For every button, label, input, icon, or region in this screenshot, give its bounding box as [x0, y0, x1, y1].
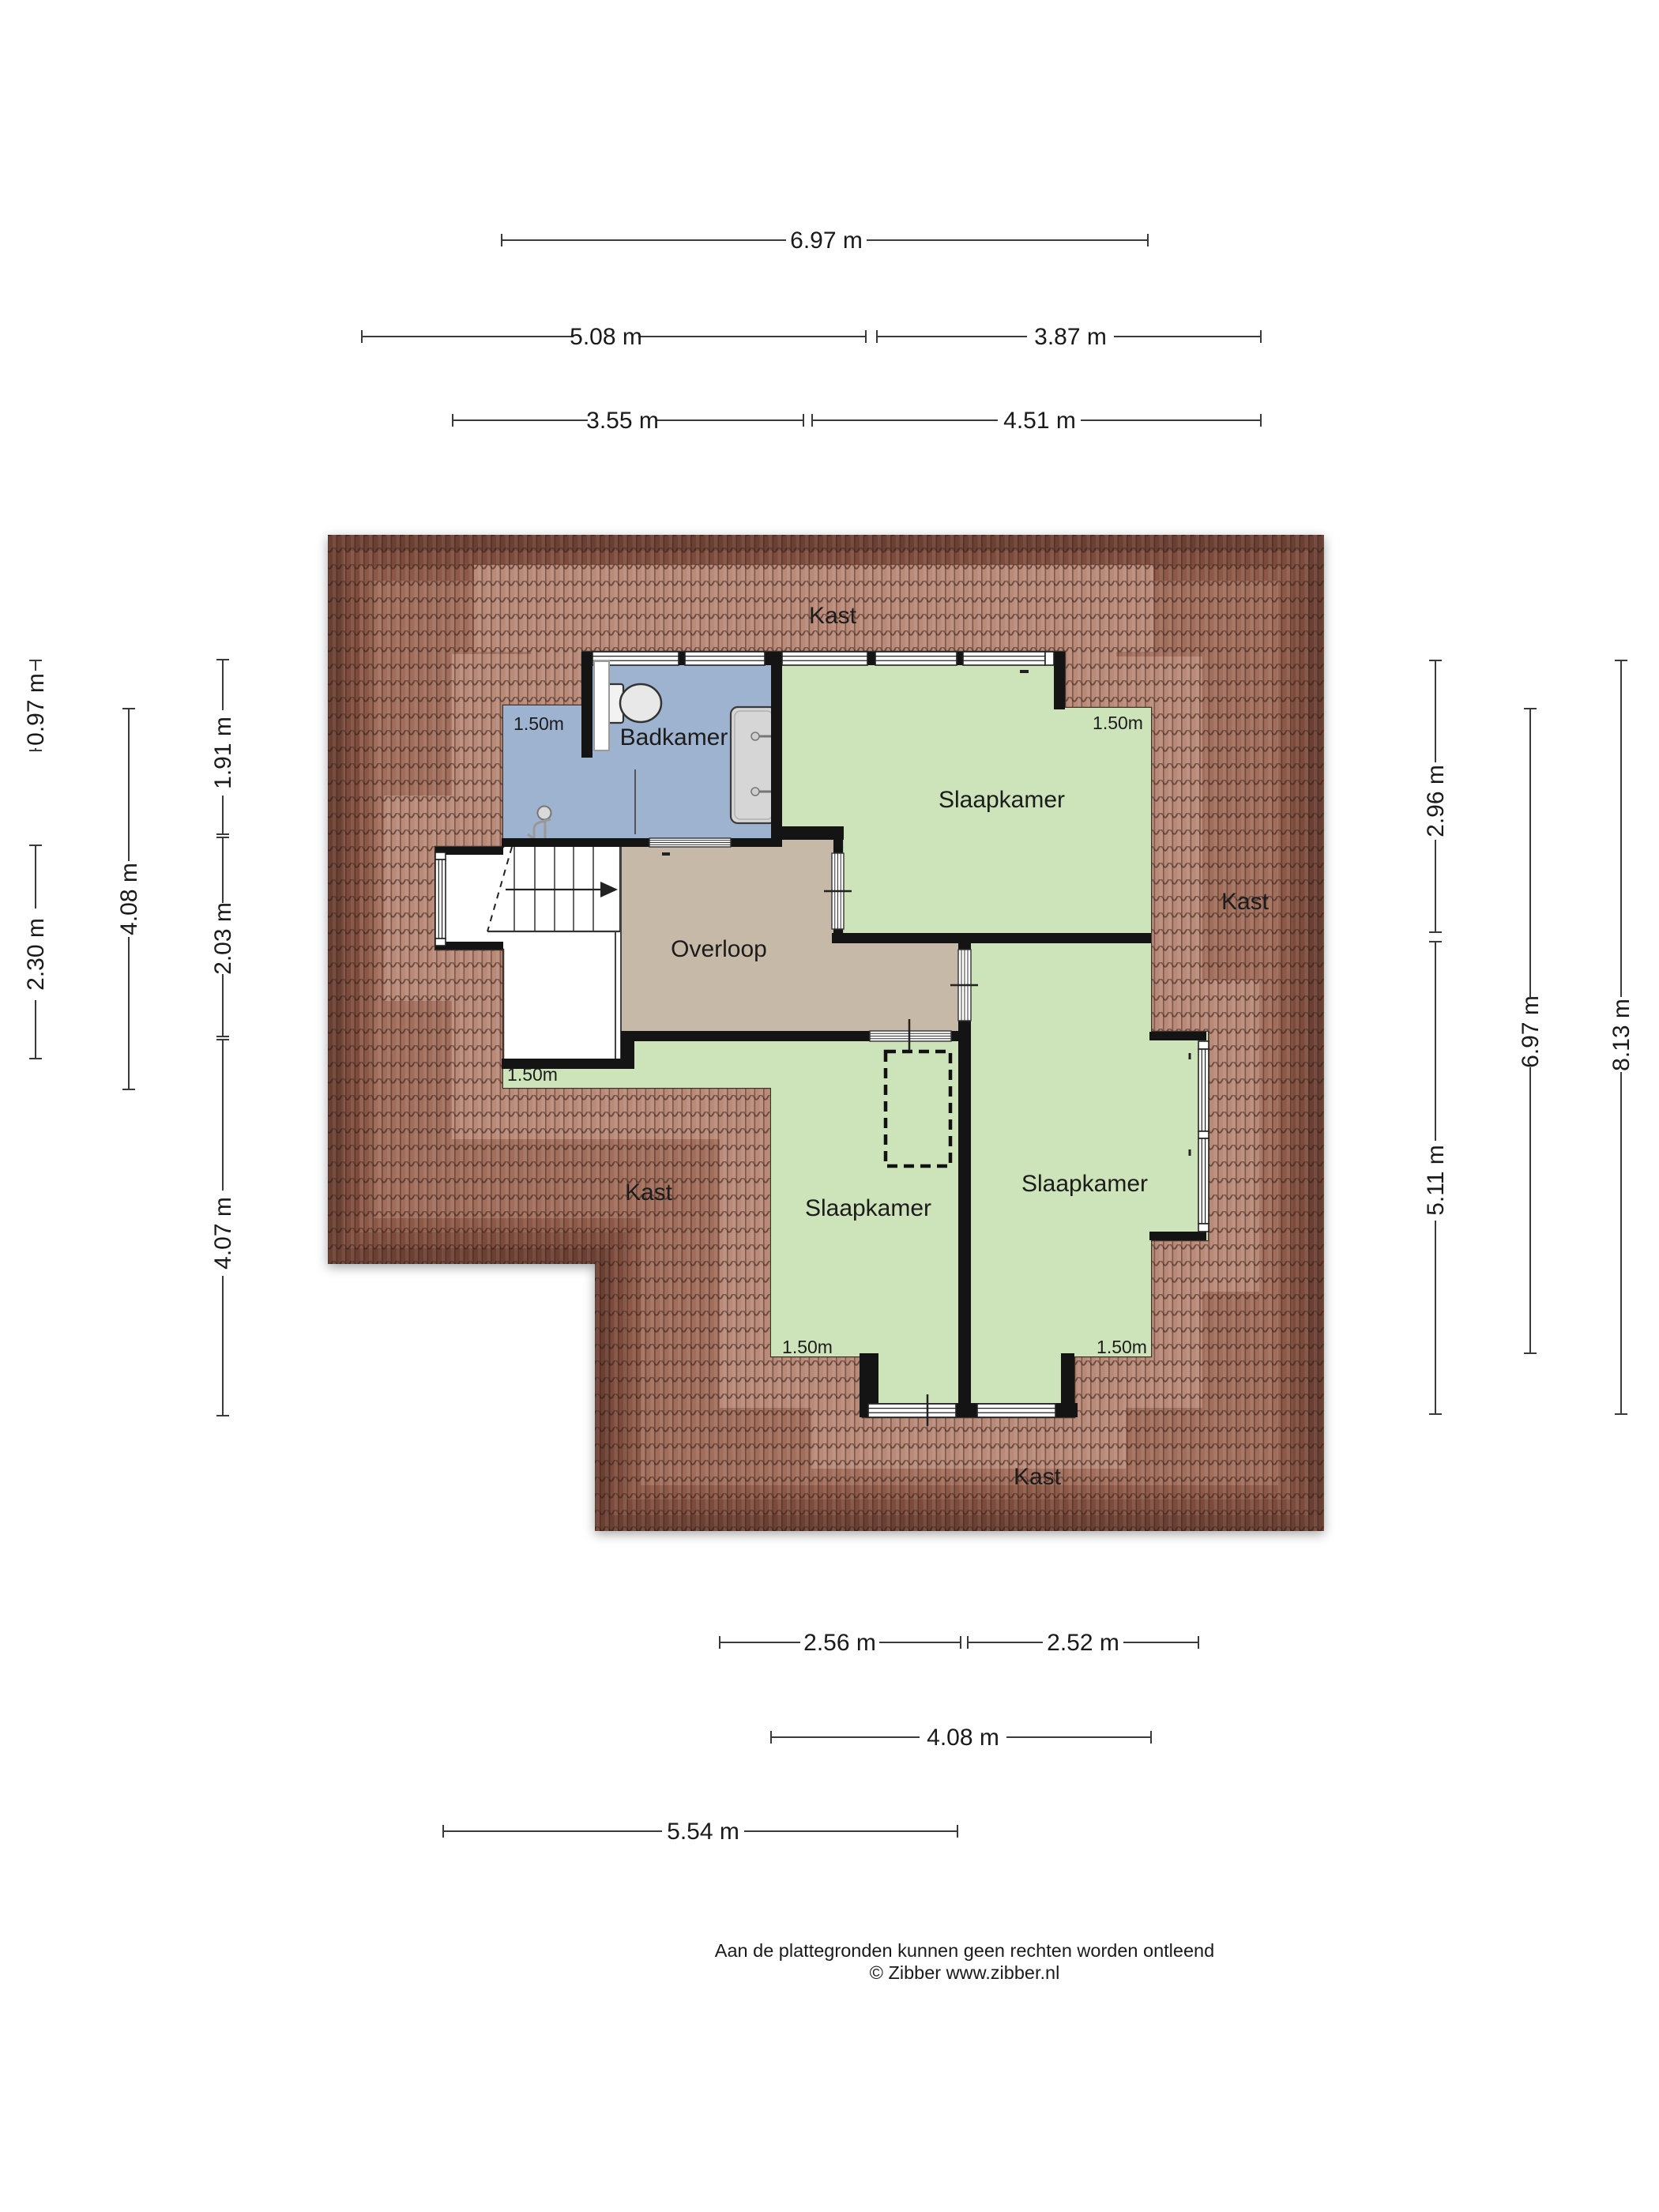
svg-text:Slaapkamer: Slaapkamer [1021, 1171, 1148, 1197]
svg-text:1.91 m: 1.91 m [210, 717, 236, 789]
svg-text:1.50m: 1.50m [1097, 1337, 1147, 1357]
svg-text:1.50m: 1.50m [782, 1337, 833, 1357]
svg-text:4.08 m: 4.08 m [927, 1725, 999, 1751]
svg-text:6.97 m: 6.97 m [1518, 995, 1544, 1068]
svg-text:6.97 m: 6.97 m [790, 228, 863, 254]
svg-text:2.96 m: 2.96 m [1423, 765, 1449, 837]
svg-text:4.51 m: 4.51 m [1003, 408, 1076, 434]
svg-text:Kast: Kast [1014, 1464, 1062, 1490]
svg-text:3.87 m: 3.87 m [1034, 324, 1107, 350]
svg-text:5.11 m: 5.11 m [1423, 1145, 1449, 1216]
svg-text:2.52 m: 2.52 m [1047, 1630, 1119, 1656]
svg-text:Overloop: Overloop [671, 936, 767, 962]
svg-text:Kast: Kast [1221, 889, 1270, 915]
svg-text:2.30 m: 2.30 m [23, 918, 49, 991]
svg-text:Kast: Kast [809, 603, 857, 629]
svg-text:1.50m: 1.50m [507, 1064, 558, 1085]
svg-text:4.08 m: 4.08 m [116, 863, 142, 935]
svg-text:5.54 m: 5.54 m [667, 1819, 739, 1845]
svg-text:8.13 m: 8.13 m [1608, 999, 1635, 1071]
svg-text:5.08 m: 5.08 m [570, 324, 642, 350]
svg-text:0.97 m: 0.97 m [23, 673, 49, 746]
svg-text:Aan de plattegronden kunnen ge: Aan de plattegronden kunnen geen rechten… [715, 1940, 1214, 1961]
svg-text:2.03 m: 2.03 m [210, 902, 236, 975]
svg-text:3.55 m: 3.55 m [586, 408, 659, 434]
svg-text:1.50m: 1.50m [1093, 713, 1143, 733]
svg-text:Kast: Kast [625, 1179, 673, 1206]
svg-text:2.56 m: 2.56 m [803, 1630, 876, 1656]
svg-text:© Zibber www.zibber.nl: © Zibber www.zibber.nl [870, 1962, 1060, 1983]
svg-text:1.50m: 1.50m [513, 713, 564, 734]
svg-text:Slaapkamer: Slaapkamer [805, 1195, 931, 1221]
svg-text:Badkamer: Badkamer [620, 724, 728, 750]
svg-text:Slaapkamer: Slaapkamer [939, 787, 1065, 813]
svg-text:4.07 m: 4.07 m [210, 1197, 236, 1270]
